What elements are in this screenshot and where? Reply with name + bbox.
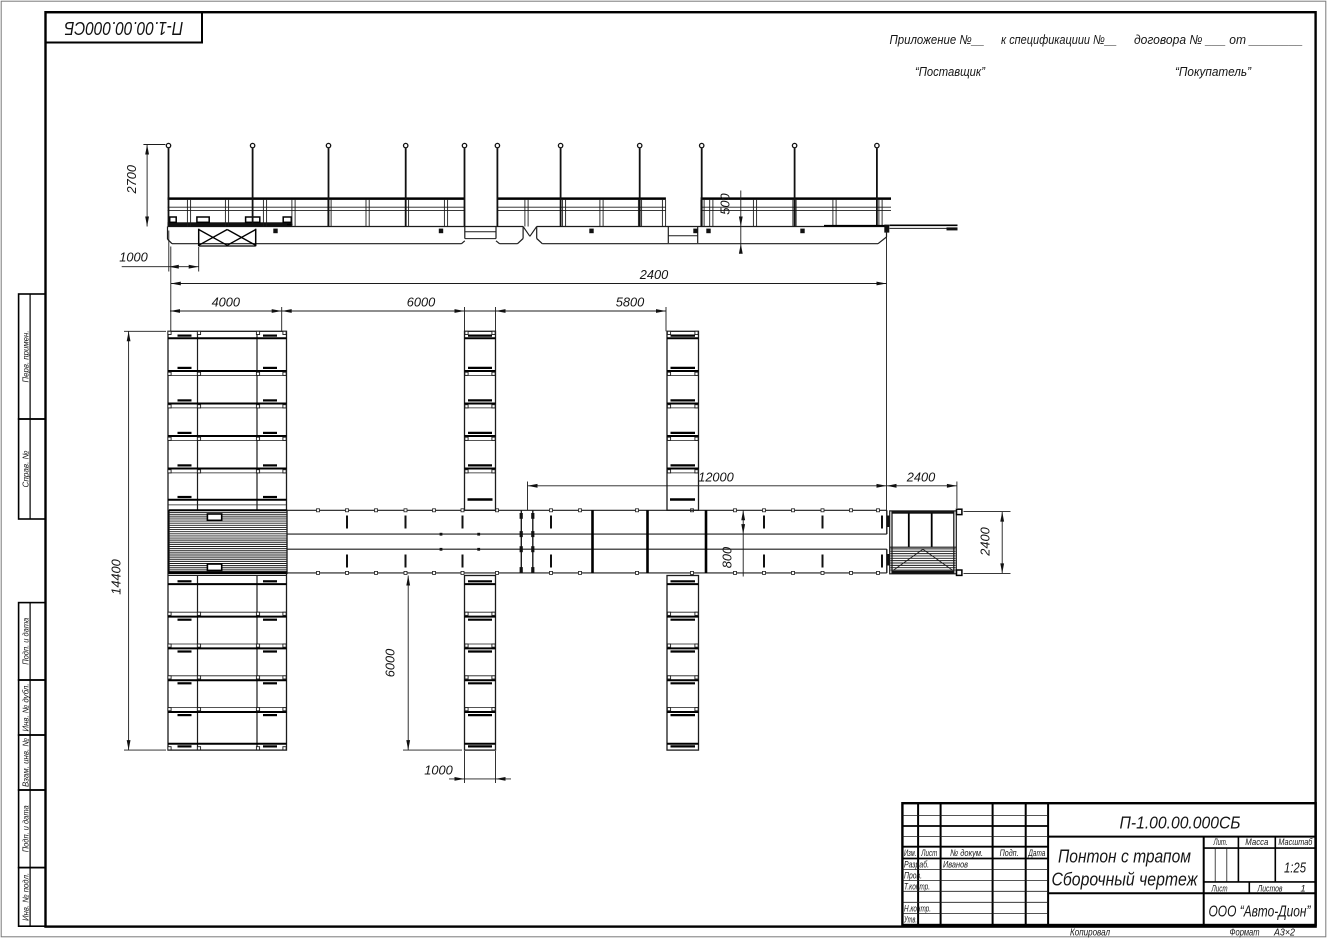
svg-text:А3×2: А3×2: [1273, 927, 1295, 938]
svg-text:Дата: Дата: [1028, 848, 1046, 859]
svg-text:Копировал: Копировал: [1070, 927, 1110, 938]
svg-text:Иванов: Иванов: [943, 859, 968, 870]
svg-text:ООО “Авто-Дион”: ООО “Авто-Дион”: [1209, 904, 1312, 921]
svg-text:Инв. № дубл.: Инв. № дубл.: [20, 684, 30, 732]
svg-text:Т.контр.: Т.контр.: [904, 881, 930, 892]
svg-text:500: 500: [718, 192, 733, 214]
svg-text:Разраб.: Разраб.: [904, 859, 929, 870]
svg-text:2400: 2400: [639, 267, 669, 282]
svg-text:1000: 1000: [424, 763, 453, 778]
svg-text:6000: 6000: [383, 648, 398, 677]
svg-text:2400: 2400: [978, 526, 993, 556]
svg-text:Инв. № подл.: Инв. № подл.: [20, 873, 30, 921]
svg-text:“Поставщик”: “Поставщик”: [915, 64, 986, 79]
svg-text:Подп.: Подп.: [1000, 848, 1019, 859]
svg-text:Справ. №: Справ. №: [20, 451, 30, 488]
svg-text:1:25: 1:25: [1284, 861, 1307, 877]
svg-text:Подп. и дата: Подп. и дата: [20, 618, 30, 665]
svg-text:№ докум.: № докум.: [950, 848, 983, 859]
svg-text:2700: 2700: [124, 164, 139, 194]
svg-text:Приложение №__: Приложение №__: [890, 32, 985, 47]
svg-text:2400: 2400: [906, 469, 936, 484]
svg-text:Н.контр.: Н.контр.: [904, 903, 931, 914]
svg-text:12000: 12000: [698, 469, 734, 484]
svg-text:1: 1: [1300, 883, 1305, 894]
svg-text:Масштаб: Масштаб: [1278, 837, 1312, 848]
svg-text:6000: 6000: [407, 294, 436, 309]
svg-text:П-1.00.00.000СБ: П-1.00.00.000СБ: [1120, 813, 1241, 833]
svg-text:Масса: Масса: [1245, 837, 1268, 848]
svg-text:к спецификациии №__: к спецификациии №__: [1001, 32, 1117, 47]
svg-text:Лит.: Лит.: [1213, 837, 1228, 848]
svg-text:Лист: Лист: [1211, 883, 1228, 894]
svg-text:800: 800: [719, 546, 734, 568]
svg-text:14400: 14400: [109, 558, 124, 594]
svg-text:“Покупатель”: “Покупатель”: [1175, 64, 1252, 79]
svg-text:Изм.: Изм.: [904, 848, 917, 859]
svg-text:П-1.00.00.000СБ: П-1.00.00.000СБ: [64, 18, 183, 38]
svg-text:4000: 4000: [212, 294, 241, 309]
svg-text:Лист: Лист: [921, 848, 938, 859]
svg-text:5800: 5800: [616, 294, 645, 309]
svg-text:Взам. инв. №: Взам. инв. №: [20, 738, 30, 787]
svg-text:Сборочный чертеж: Сборочный чертеж: [1052, 870, 1199, 890]
svg-text:Утв.: Утв.: [903, 914, 917, 925]
svg-text:Пров.: Пров.: [904, 870, 922, 881]
svg-text:Формат: Формат: [1230, 927, 1260, 938]
svg-text:Перв. примен.: Перв. примен.: [20, 331, 30, 383]
svg-text:Понтон с трапом: Понтон с трапом: [1058, 847, 1191, 867]
svg-text:Листов: Листов: [1257, 883, 1283, 894]
svg-text:Подп. и дата: Подп. и дата: [20, 805, 30, 852]
svg-text:1000: 1000: [119, 249, 148, 264]
svg-text:договора № ___ от ________: договора № ___ от ________: [1134, 32, 1303, 47]
